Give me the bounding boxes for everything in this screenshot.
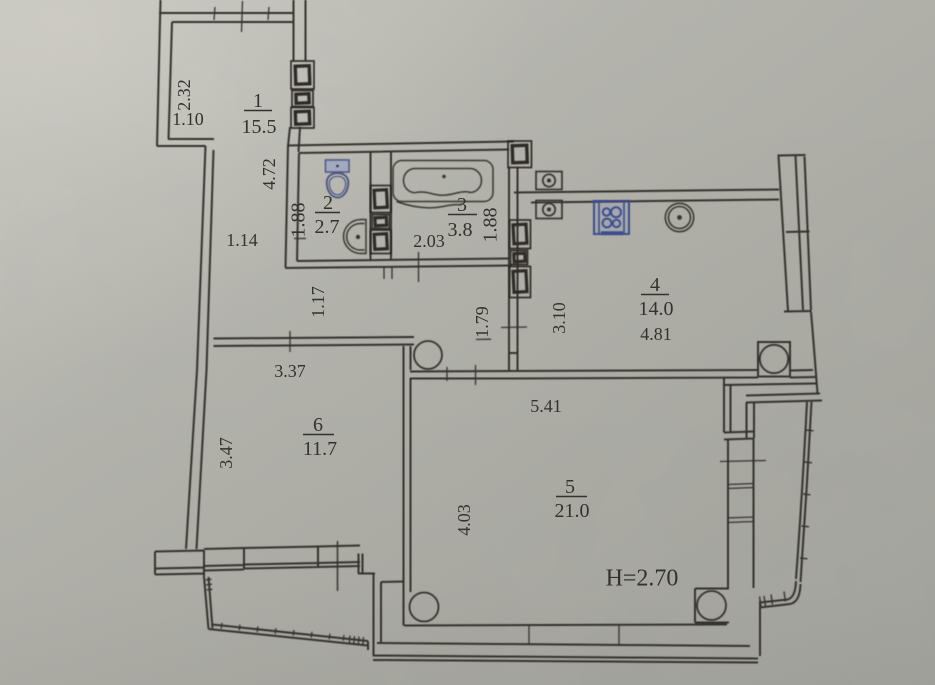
svg-text:3.37: 3.37 [274, 361, 306, 381]
svg-text:5.41: 5.41 [530, 396, 562, 416]
svg-text:2.32: 2.32 [174, 79, 194, 111]
svg-text:4.03: 4.03 [454, 504, 474, 536]
svg-text:1.79: 1.79 [472, 306, 492, 338]
svg-text:2: 2 [323, 192, 333, 214]
svg-text:1.88: 1.88 [480, 208, 502, 243]
svg-text:4.72: 4.72 [259, 158, 279, 190]
svg-text:2.03: 2.03 [413, 231, 445, 251]
svg-text:21.0: 21.0 [555, 500, 590, 522]
svg-text:11.7: 11.7 [303, 438, 337, 460]
svg-text:4: 4 [650, 274, 660, 296]
svg-text:1.14: 1.14 [226, 230, 258, 250]
svg-text:4.81: 4.81 [640, 324, 672, 344]
svg-text:1.17: 1.17 [308, 286, 328, 318]
svg-text:3.47: 3.47 [216, 437, 236, 469]
svg-text:1.88: 1.88 [288, 203, 310, 238]
svg-text:15.5: 15.5 [242, 116, 277, 138]
svg-text:1: 1 [253, 90, 263, 112]
svg-text:1.10: 1.10 [172, 109, 204, 129]
svg-text:3.8: 3.8 [448, 219, 473, 241]
svg-text:6: 6 [313, 414, 323, 436]
svg-text:H=2.70: H=2.70 [606, 566, 679, 592]
svg-text:3.10: 3.10 [549, 302, 569, 334]
svg-text:3: 3 [457, 194, 467, 216]
svg-text:14.0: 14.0 [639, 298, 674, 320]
svg-text:5: 5 [565, 476, 575, 498]
svg-text:2.7: 2.7 [315, 216, 340, 238]
